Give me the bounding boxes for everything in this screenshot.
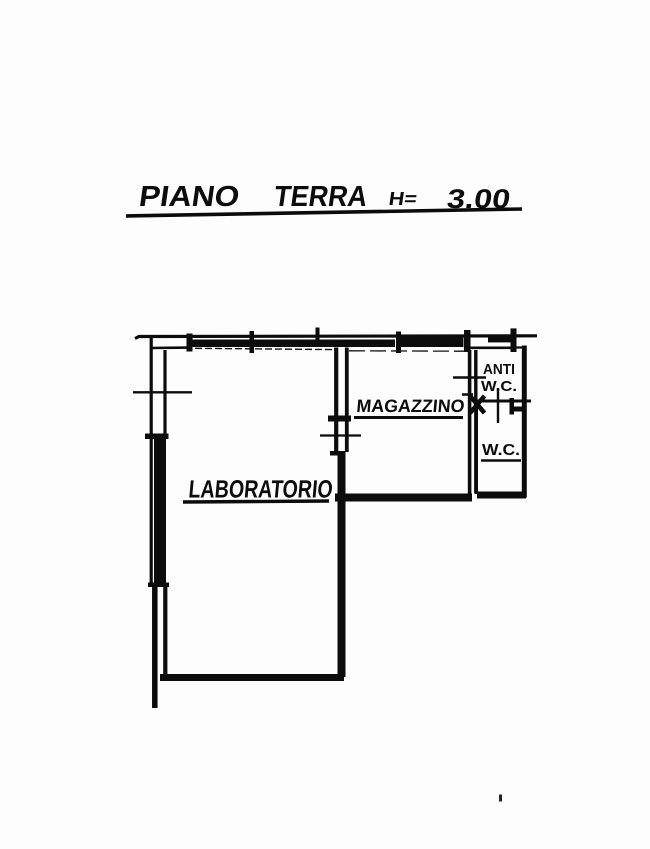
svg-text:MAGAZZINO: MAGAZZINO	[356, 396, 466, 416]
svg-text:ANTI: ANTI	[483, 361, 515, 378]
svg-text:PIANO: PIANO	[137, 181, 241, 213]
svg-text:TERRA: TERRA	[272, 181, 369, 213]
svg-text:LABORATORIO: LABORATORIO	[187, 476, 333, 504]
svg-text:H=: H=	[387, 189, 418, 210]
svg-text:W.C.: W.C.	[482, 442, 520, 459]
